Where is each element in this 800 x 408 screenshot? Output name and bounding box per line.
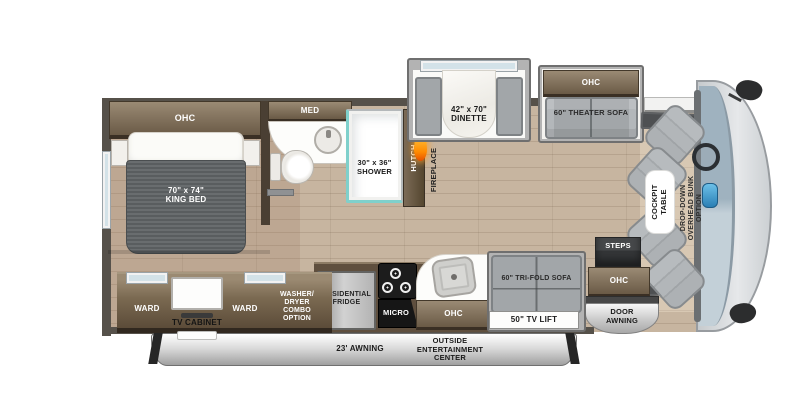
drop-down-bunk-label: DROP-DOWN OVERHEAD BUNK OPTION [677,156,707,260]
tv-lift-label: 50" TV LIFT [489,311,579,329]
washer-dryer-label: WASHER/ DRYER COMBO OPTION [265,286,329,328]
awning-label: 23' AWNING [310,342,410,355]
theater-ohc-label: OHC [543,70,639,95]
trifold-sofa-label: 60" TRI-FOLD SOFA [489,272,584,286]
ward-left-label: WARD [117,303,177,315]
micro-label: MICRO [376,303,416,323]
sink-faucet [451,274,457,280]
theater-sofa-label: 60" THEATER SOFA [543,106,639,120]
burner-icon-3 [400,282,411,293]
bed-slide-shadow [108,250,270,254]
tv-cabinet-notch [177,331,217,340]
dinette-label: 42" x 70" DINETTE [407,100,531,128]
storage-window-left [127,273,167,283]
bedroom-ohc-label: OHC [109,101,261,135]
rear-window [103,152,110,228]
burner-icon-1 [390,268,401,279]
toilet-bowl [281,150,314,184]
rv-floor-plan: OHC 70" x 74" KING BED MED 30" x 36" SHO… [0,0,800,408]
storage-window-right [245,273,285,283]
bath-faucet [326,130,331,138]
door-awning-label: DOOR AWNING [585,304,659,330]
bath-pocket-door [267,189,294,196]
kitchen-ohc-label: OHC [416,300,491,328]
steps-label: STEPS [595,238,641,254]
toilet-tank [270,153,281,181]
entry-ohc-label: OHC [588,267,650,295]
cockpit-table-label: COCKPIT TABLE [646,171,674,233]
entertainment-center-label: OUTSIDE ENTERTAINMENT CENTER [398,334,502,366]
burner-icon-2 [382,282,393,293]
tv-cabinet-label: TV CABINET [157,317,237,329]
med-label: MED [268,101,352,120]
fireplace-label: FIREPLACE [428,138,440,202]
shower-label: 30" x 36" SHOWER [346,150,403,186]
king-bed-label: 70" x 74" KING BED [126,178,246,212]
